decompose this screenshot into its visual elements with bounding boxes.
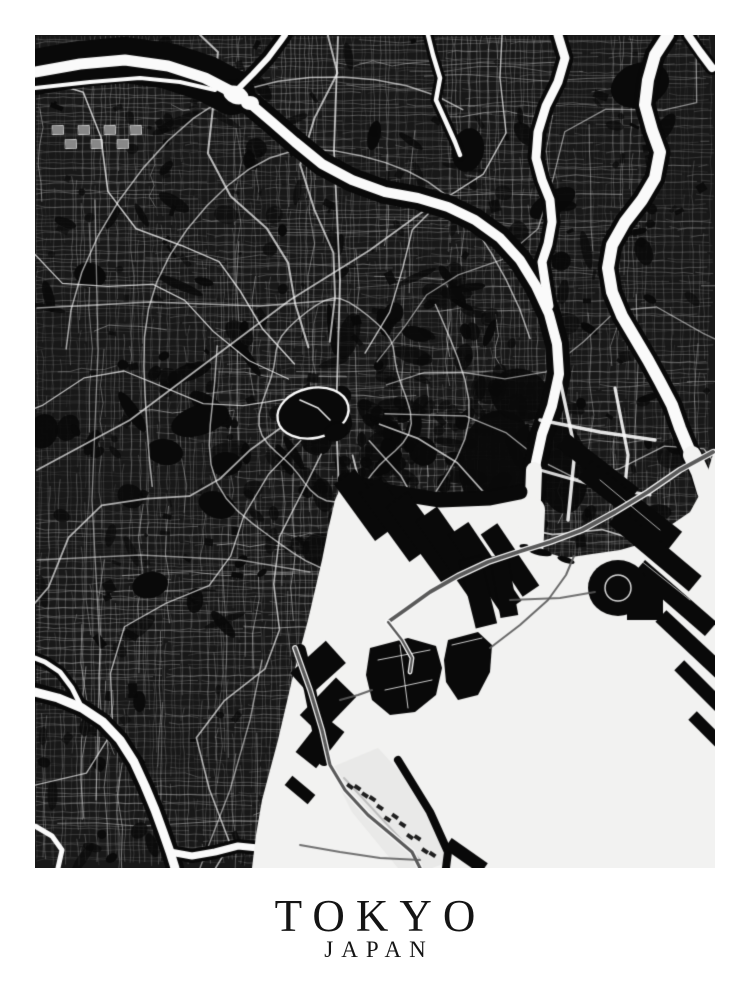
- poster-subtitle: JAPAN: [0, 939, 750, 961]
- tokyo-map-image: [35, 35, 715, 868]
- poster-title: TOKYO: [0, 894, 750, 938]
- poster: TOKYO JAPAN: [0, 0, 750, 1000]
